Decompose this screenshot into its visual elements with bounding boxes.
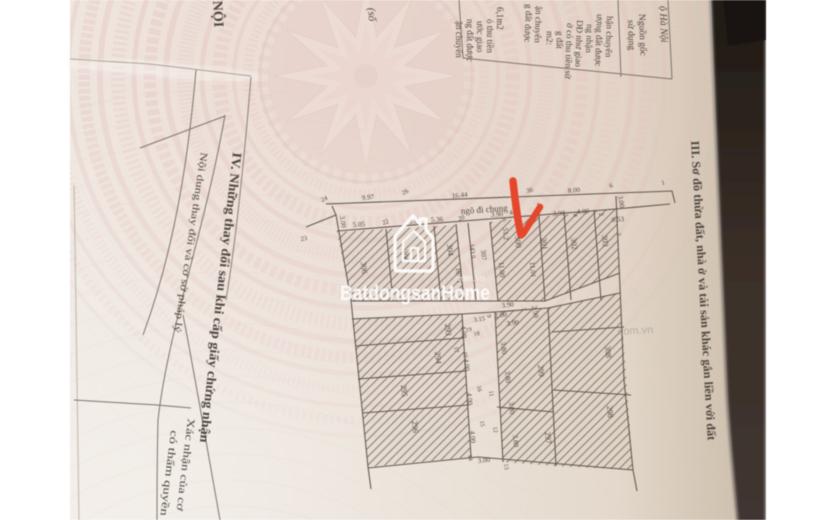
- svg-text:16.44: 16.44: [451, 191, 468, 200]
- svg-text:301: 301: [539, 237, 549, 250]
- svg-text:g đất được: g đất được: [523, 4, 534, 42]
- svg-text:299: 299: [536, 364, 546, 377]
- svg-text:296: 296: [410, 420, 420, 433]
- svg-text:304: 304: [445, 243, 455, 256]
- svg-text:5.05: 5.05: [353, 220, 366, 229]
- svg-text:ước giao: ước giao: [475, 21, 485, 53]
- svg-text:4.00: 4.00: [468, 430, 477, 443]
- svg-text:14: 14: [466, 454, 473, 461]
- svg-text:17: 17: [452, 346, 459, 353]
- svg-text:g đất: g đất: [554, 31, 565, 50]
- svg-text:293: 293: [443, 323, 453, 336]
- svg-text:BatdongsanHome: BatdongsanHome: [340, 281, 490, 305]
- svg-text:8.00: 8.00: [567, 186, 580, 195]
- svg-text:4.00: 4.00: [462, 358, 471, 371]
- svg-text:com.vn: com.vn: [456, 273, 485, 283]
- svg-text:294: 294: [433, 351, 443, 364]
- svg-text:ộ Hà Nội: ộ Hà Nội: [657, 6, 669, 43]
- svg-text:13: 13: [502, 463, 509, 470]
- svg-text:3.00: 3.00: [477, 456, 491, 465]
- svg-text:ng đất được: ng đất được: [465, 19, 475, 62]
- svg-text:297: 297: [543, 431, 553, 444]
- svg-text:3.80: 3.80: [511, 434, 520, 447]
- svg-text:4.00: 4.00: [459, 325, 468, 338]
- svg-text:ận chuyển: ận chuyển: [454, 21, 464, 58]
- svg-text:(số: (số: [365, 7, 378, 23]
- svg-text:Nguồn gốc: Nguồn gốc: [636, 14, 648, 56]
- svg-text:303: 303: [600, 234, 610, 247]
- svg-text:11.00: 11.00: [497, 261, 506, 278]
- svg-text:3.80: 3.80: [503, 370, 512, 383]
- svg-text:16: 16: [475, 385, 482, 392]
- svg-text:295: 295: [399, 384, 409, 397]
- svg-text:12: 12: [491, 426, 498, 433]
- svg-text:15: 15: [478, 420, 485, 427]
- svg-text:143.9: 143.9: [468, 244, 476, 259]
- svg-text:307: 307: [479, 249, 488, 261]
- svg-text:298: 298: [605, 405, 615, 418]
- svg-text:3.80: 3.80: [507, 401, 516, 414]
- svg-text:3.90: 3.90: [491, 210, 504, 219]
- svg-text:18: 18: [473, 331, 480, 338]
- svg-text:51.2: 51.2: [501, 227, 510, 240]
- svg-text:11.01: 11.01: [528, 261, 537, 278]
- svg-text:23: 23: [300, 235, 308, 243]
- svg-text:302: 302: [569, 237, 579, 250]
- svg-text:10: 10: [461, 351, 468, 358]
- svg-text:4.00: 4.00: [577, 207, 590, 216]
- svg-text:306: 306: [359, 261, 369, 274]
- svg-text:6,1m2: 6,1m2: [495, 7, 505, 30]
- svg-text:sử dụng: sử dụng: [625, 20, 636, 51]
- svg-text:m2:: m2:: [545, 31, 555, 45]
- svg-text:3.90: 3.90: [553, 209, 566, 218]
- svg-text:5.36: 5.36: [431, 215, 444, 224]
- svg-text:11: 11: [487, 390, 494, 397]
- svg-text:308: 308: [603, 345, 613, 358]
- svg-text:com.vn: com.vn: [618, 324, 654, 338]
- svg-text:3.80: 3.80: [499, 341, 508, 354]
- svg-text:NỘI: NỘI: [209, 0, 227, 27]
- svg-text:4.00: 4.00: [465, 392, 474, 405]
- svg-text:9.97: 9.97: [361, 193, 374, 202]
- svg-text:ỏ thu tiền: ỏ thu tiền: [485, 19, 495, 53]
- svg-text:0.53: 0.53: [612, 215, 625, 224]
